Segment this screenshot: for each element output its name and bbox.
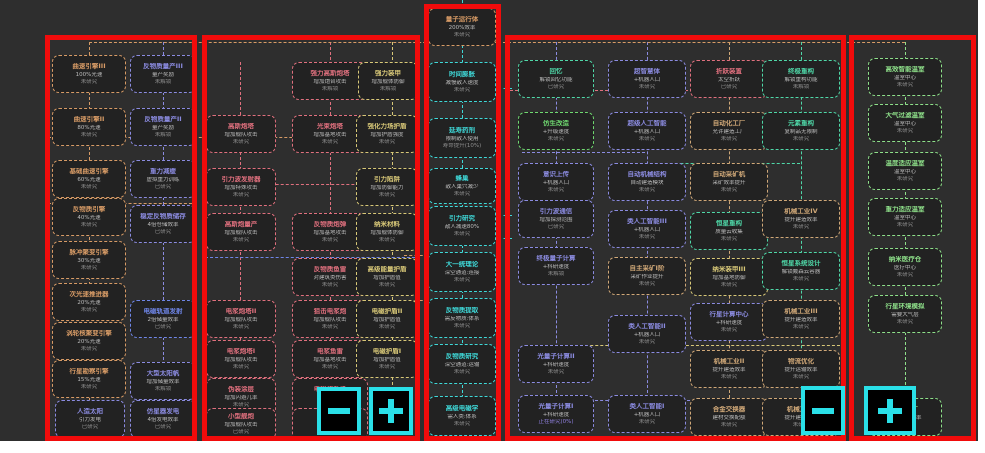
- zoom-out-button-2[interactable]: [801, 386, 845, 435]
- minus-icon: [328, 408, 350, 414]
- zoom-out-button[interactable]: [317, 387, 361, 435]
- highlight-box-engines: [45, 35, 197, 441]
- highlight-box-habitat: [849, 35, 976, 441]
- tech-tree-canvas[interactable]: 曲速引擎III100%光速未研究曲速引擎II80%光速未研究基础曲速引擎60%光…: [0, 0, 978, 441]
- highlight-box-weapons: [202, 35, 420, 441]
- zoom-in-button-2[interactable]: [864, 386, 916, 435]
- minus-icon: [812, 408, 834, 414]
- highlight-box-industry: [505, 35, 846, 441]
- zoom-in-button[interactable]: [369, 387, 413, 435]
- plus-icon: [878, 399, 902, 423]
- tech-tree-screen: 曲速引擎III100%光速未研究曲速引擎II80%光速未研究基础曲速引擎60%光…: [0, 0, 985, 453]
- plus-icon: [379, 399, 403, 423]
- highlight-box-core: [424, 4, 501, 441]
